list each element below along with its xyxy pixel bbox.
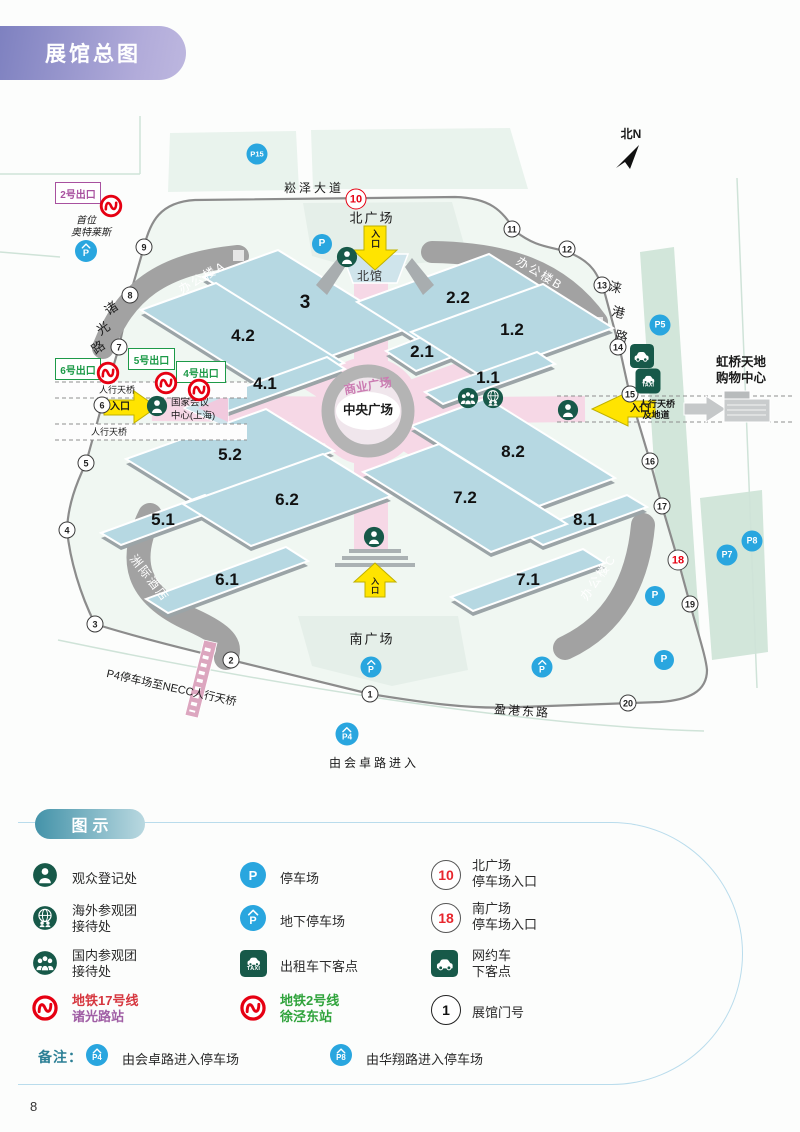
entrance-label-west: 入口 [110,401,130,413]
page-number: 8 [30,1100,37,1115]
legend-p4-note: 由会卓路进入停车场 [122,1049,239,1068]
gate-number-legend-icon: 1 [431,995,461,1025]
gate-2: 2 [223,652,240,669]
car-icon [632,349,651,362]
parking-p7-label: P7 [722,551,733,560]
visitor-registration-icon [363,526,385,548]
parking-p15-label: P15 [250,150,263,158]
parking-label: P [83,249,89,258]
metro-exit-6-label: 6号出口 [60,362,96,377]
car-icon [244,955,263,966]
parking-p4-label: P4 [342,733,352,741]
legend-south-line2: 停车场入口 [472,917,537,933]
metro-logo-icon [240,995,266,1021]
road-south-entry: 由会卓路进入 [329,757,419,771]
gate-13: 13 [594,277,611,294]
parking-p4-icon: P4 [336,723,359,746]
mall-label: 虹桥天地 [716,355,766,369]
mall-label: 购物中心 [716,371,766,385]
legend-line17-label: 地铁17号线诸光路站 [72,993,138,1025]
parking-p4-label: P4 [92,1054,102,1062]
gate-8: 8 [122,287,139,304]
entrance-label-south: 入口 [370,577,379,595]
metro-exit-5-label: 5号出口 [134,352,170,367]
ride-hailing-dropoff-icon [431,950,458,977]
hall-label-2-2: 2.2 [446,288,470,308]
parking-icon: P [312,234,332,254]
west-footbridge-label: 人行天桥 [99,385,135,395]
legend-overseas-line2: 接待处 [72,919,137,935]
overseas-group-reception-icon [482,387,504,409]
legend-south-parking-label: 南广场停车场入口 [472,901,537,933]
hall-label-1-1: 1.1 [476,368,500,388]
gate-1: 1 [362,686,379,703]
entrance-label-north: 入口 [370,229,380,249]
ride-hailing-dropoff-icon [630,344,654,368]
north-plaza-label: 北广场 [349,212,394,227]
parking-label: P [249,869,258,882]
legend-registration-label: 观众登记处 [72,868,137,887]
hall-label-6-2: 6.2 [275,490,299,510]
legend-title-banner: 图示 [35,809,145,839]
metro-exit-6: 6号出口 [55,358,101,380]
gate-18-legend-icon: 18 [431,903,461,933]
gate-17: 17 [654,498,671,515]
legend-north-line2: 停车场入口 [472,874,537,890]
visitor-registration-icon [146,395,168,417]
taxi-label: TAXI [642,383,654,389]
hall-label-1-2: 1.2 [500,320,524,340]
metro-logo-icon [100,195,123,218]
underground-parking-icon: P [75,240,97,262]
legend-overseas-line1: 海外参观团 [72,903,137,919]
west-footbridge-label: 人行天桥 [91,427,127,437]
metro-exit-2: 2号出口 [55,182,101,204]
legend-title: 图示 [71,812,113,836]
hall-label-7-2: 7.2 [453,488,477,508]
metro-logo-icon [188,379,211,402]
parking-p8-label: P8 [336,1054,346,1062]
south-plaza-label: 南广场 [349,633,394,648]
p4-footbridge [185,640,217,718]
visitor-registration-icon [32,862,58,888]
legend-line2-label: 地铁2号线徐泾东站 [280,993,339,1025]
metro-exit-5: 5号出口 [128,348,175,370]
outlet-label: 奥特莱斯 [71,227,111,239]
parking-label: P [319,239,326,249]
gate-6: 6 [94,397,111,414]
parking-p4-icon: P4 [86,1044,108,1066]
legend-taxi-label: 出租车下客点 [280,956,358,975]
car-icon [434,956,456,971]
hall-label-2-1: 2.1 [410,342,434,362]
parking-p8-icon: P8 [330,1044,352,1066]
parking-icon: P [645,586,665,606]
overseas-group-reception-icon [32,905,58,931]
hall-label-4-1: 4.1 [253,374,277,394]
gate-14: 14 [610,339,627,356]
domestic-group-reception-icon [457,387,479,409]
legend-car-line2: 下客点 [472,964,511,980]
entrance-label-east: 入口 [630,403,650,415]
mall-direction-arrow [684,396,726,422]
parking-p5-icon: P5 [650,315,671,336]
legend-line17-station: 诸光路站 [72,1009,138,1025]
parking-label: P [249,916,256,927]
metro-exit-4-label: 4号出口 [183,365,219,380]
parking-label: P [368,666,374,675]
parking-p15-icon: P15 [247,144,268,165]
central-plaza-label: 中央广场 [343,403,393,417]
hall-label-5-1: 5.1 [151,510,175,530]
parking-label: P [539,666,545,675]
gate-7: 7 [111,339,128,356]
gate-18-south-parking-entrance: 18 [668,550,689,571]
legend-line17-name: 地铁17号线 [72,993,138,1009]
parking-icon: P [240,862,266,888]
parking-label: P [661,655,668,665]
parking-p8-label: P8 [747,537,758,546]
compass-label: 北N [621,128,642,142]
legend-domestic-line1: 国内参观团 [72,948,137,964]
parking-label: P [652,591,659,601]
taxi-dropoff-icon: TAXI [636,369,661,394]
gate-9: 9 [136,239,153,256]
legend-north-parking-label: 北广场停车场入口 [472,858,537,890]
road-north: 崧泽大道 [284,182,344,196]
hall-label-4-2: 4.2 [231,326,255,346]
domestic-group-reception-icon [32,950,58,976]
gate-10-legend-icon: 10 [431,860,461,890]
page: 展馆总图 [0,0,800,1132]
legend-domestic-label: 国内参观团接待处 [72,948,137,980]
taxi-label: TAXI [247,966,260,972]
gate-10-north-parking-entrance: 10 [346,189,367,210]
legend-line2-station: 徐泾东站 [280,1009,339,1025]
hall-label-5-2: 5.2 [218,445,242,465]
convention-center-label: 中心(上海) [171,412,215,423]
parking-icon: P [654,650,674,670]
gate-4: 4 [59,522,76,539]
gate-11: 11 [504,221,521,238]
hall-label-7-1: 7.1 [516,570,540,590]
underground-parking-icon: P [240,905,266,931]
underground-parking-icon: P [532,657,553,678]
legend-line2-name: 地铁2号线 [280,993,339,1009]
legend-car-line1: 网约车 [472,948,511,964]
outlet-label: 首位 [76,215,96,227]
taxi-dropoff-icon: TAXI [240,950,267,977]
gate-19: 19 [682,596,699,613]
visitor-registration-icon [557,399,579,421]
gate-20: 20 [620,695,637,712]
gate-5: 5 [78,455,95,472]
metro-logo-icon [32,995,58,1021]
legend-domestic-line2: 接待处 [72,964,137,980]
parking-p5-label: P5 [655,321,666,330]
legend-south-line1: 南广场 [472,901,537,917]
hall-label-3: 3 [300,292,311,314]
metro-logo-icon [155,372,178,395]
legend-note-label: 备注： [38,1047,83,1067]
visitor-registration-icon [336,246,358,268]
metro-exit-2-label: 2号出口 [60,186,96,201]
underground-parking-icon: P [361,657,382,678]
legend-gate-number-label: 展馆门号 [472,1002,524,1021]
hall-label-6-1: 6.1 [215,570,239,590]
legend-parking-label: 停车场 [280,868,319,887]
legend-ride-hailing-label: 网约车下客点 [472,948,511,980]
gate-12: 12 [559,241,576,258]
parking-p7-icon: P7 [717,545,738,566]
legend-underground-parking-label: 地下停车场 [280,911,345,930]
legend-north-line1: 北广场 [472,858,537,874]
hall-label-8-2: 8.2 [501,442,525,462]
metro-logo-icon [97,362,120,385]
hall-label-8-1: 8.1 [573,510,597,530]
gate-16: 16 [642,453,659,470]
legend-p8-note: 由华翔路进入停车场 [366,1049,483,1068]
parking-p8-icon: P8 [742,531,763,552]
compass-arrow-icon [616,145,639,169]
gate-3: 3 [87,616,104,633]
north-hall-label: 北馆 [357,270,383,284]
legend-overseas-label: 海外参观团接待处 [72,903,137,935]
